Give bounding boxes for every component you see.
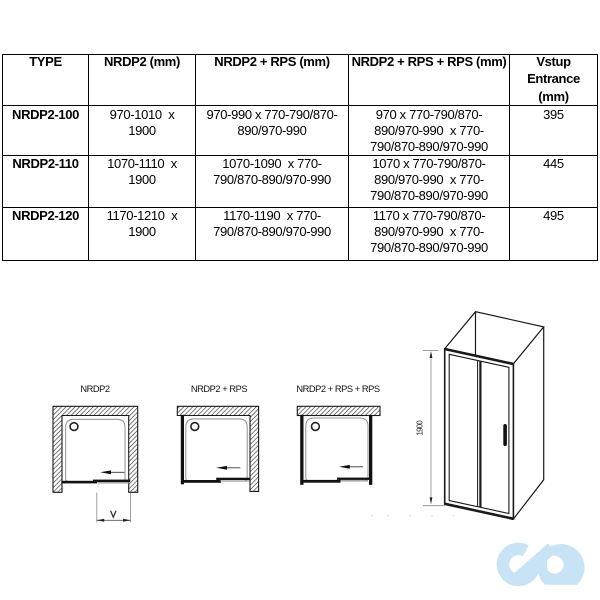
svg-text:NRDP2: NRDP2 — [80, 384, 110, 394]
svg-text:NRDP2 + RPS + RPS: NRDP2 + RPS + RPS — [296, 384, 380, 394]
svg-text:1900: 1900 — [416, 420, 425, 436]
svg-text:NRDP2 + RPS: NRDP2 + RPS — [191, 384, 248, 394]
